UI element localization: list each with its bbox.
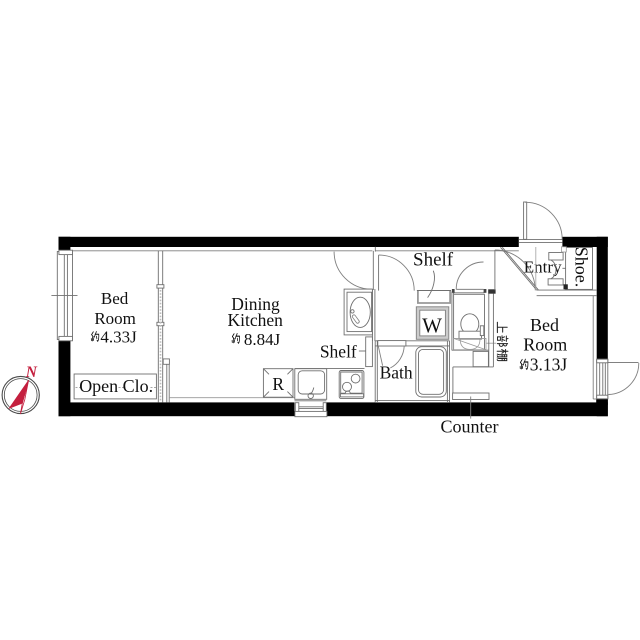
svg-text:Shoe.: Shoe. (572, 247, 592, 288)
svg-text:Bed: Bed (530, 315, 559, 335)
svg-text:W: W (422, 314, 442, 338)
svg-text:Kitchen: Kitchen (227, 310, 283, 330)
svg-text:3.13J: 3.13J (530, 355, 568, 375)
svg-text:R: R (272, 374, 284, 394)
svg-text:8.84J: 8.84J (244, 330, 281, 349)
svg-text:4.33J: 4.33J (100, 327, 137, 346)
svg-text:N: N (25, 364, 38, 381)
svg-text:Room: Room (523, 335, 567, 355)
svg-text:Shelf: Shelf (413, 249, 454, 270)
svg-text:Counter: Counter (441, 416, 499, 436)
svg-text:Room: Room (94, 309, 136, 328)
svg-text:Bath: Bath (380, 363, 413, 383)
svg-text:Bed: Bed (101, 289, 129, 308)
svg-text:Open Clo.: Open Clo. (79, 376, 153, 396)
svg-text:Shelf: Shelf (320, 342, 357, 362)
